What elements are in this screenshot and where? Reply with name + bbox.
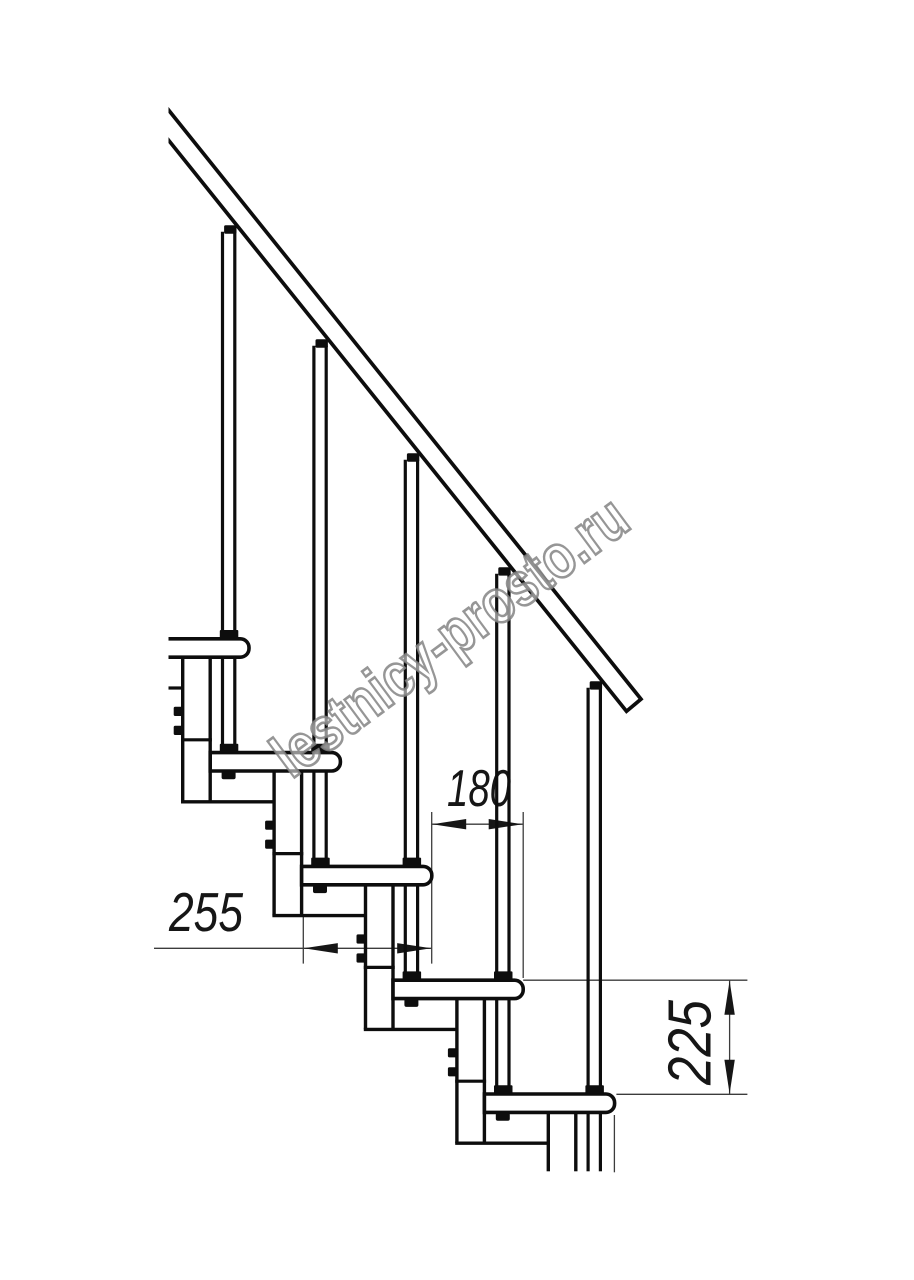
svg-text:180: 180 [447, 760, 511, 818]
svg-text:255: 255 [168, 881, 243, 943]
svg-text:225: 225 [656, 999, 724, 1086]
